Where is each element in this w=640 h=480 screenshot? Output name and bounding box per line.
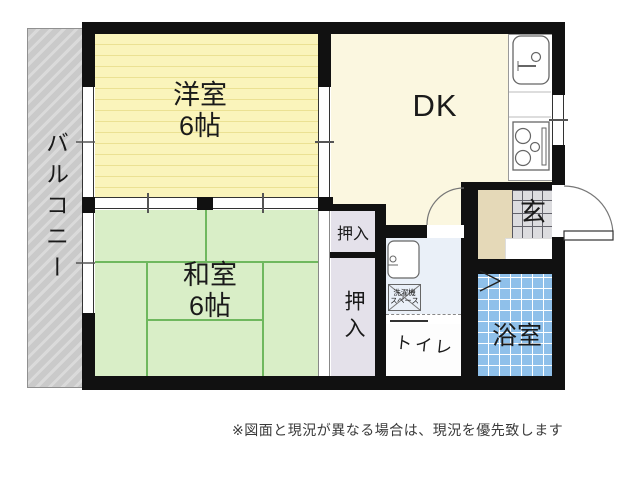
washer-space-box: 洗濯機 スペース (388, 284, 421, 311)
window-tick (549, 119, 568, 121)
japanese-room-label: 和室 6帖 (130, 260, 290, 322)
wall-closet-top (318, 204, 375, 211)
dk-label: DK (395, 88, 475, 124)
washer-space-label: 洗濯機 スペース (393, 288, 416, 307)
western-room-label: 洋室 6帖 (120, 80, 280, 142)
wall-hall-left (461, 182, 478, 390)
floorplan-canvas: バルコニー 押入 押入 (0, 0, 640, 480)
wall-right (552, 22, 565, 95)
wall-left (82, 22, 95, 87)
entry-door-icon (564, 186, 613, 240)
closet-lower: 押入 (331, 258, 375, 376)
balcony-area: バルコニー (27, 28, 84, 388)
partition-tick (262, 193, 264, 213)
balcony-label: バルコニー (39, 131, 73, 286)
wall-left (82, 197, 95, 213)
wall-entrance-top (461, 182, 565, 190)
wall-bottom (85, 376, 565, 390)
kitchen-counter (508, 34, 553, 181)
entrance-step (505, 238, 554, 261)
door-tick (315, 141, 334, 143)
window-western-balcony (82, 87, 94, 197)
closet-upper-label: 押入 (337, 220, 369, 244)
wall-bathroom-top (461, 259, 565, 274)
dk-doorway (427, 225, 464, 238)
disclaimer-note: ※図面と現況が異なる場合は、現況を優先致します (232, 420, 592, 440)
wall-right (552, 145, 565, 185)
partition-tick (147, 193, 149, 213)
wall-left (82, 313, 95, 390)
closet-upper: 押入 (331, 211, 375, 252)
closet-lower-label: 押入 (338, 290, 368, 344)
wall-dk-bottom (375, 225, 427, 238)
window-japanese-balcony (82, 213, 94, 313)
entrance-label: 玄 (517, 198, 549, 228)
wall-western-dk (318, 22, 331, 87)
bathroom-label: 浴室 (486, 322, 548, 351)
toilet-door-leaf (390, 320, 428, 322)
fusuma-japanese-closet (318, 211, 330, 376)
tatami-line (205, 210, 207, 263)
partition-center-post (197, 197, 213, 210)
entry-doorway (552, 185, 565, 237)
